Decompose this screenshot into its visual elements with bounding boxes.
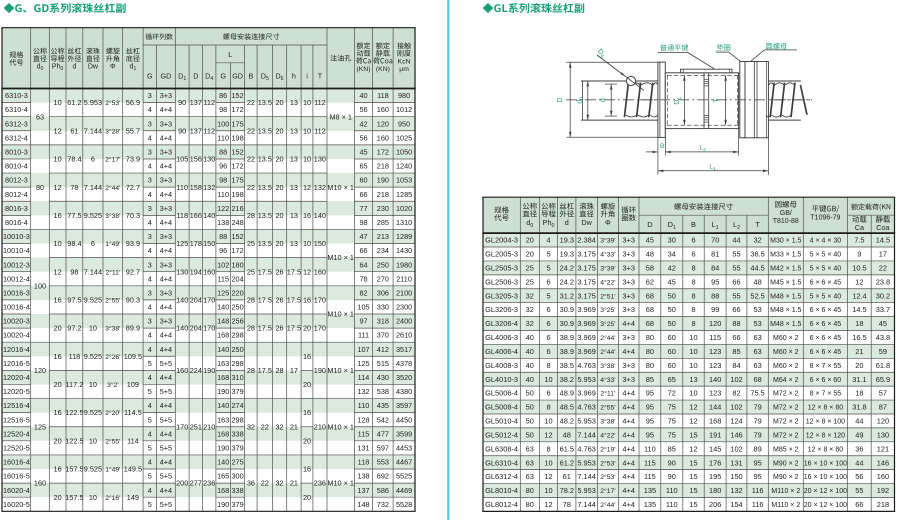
svg-text:30: 30 <box>668 236 676 245</box>
svg-text:Dw: Dw <box>581 218 592 227</box>
svg-text:148: 148 <box>217 317 229 326</box>
svg-text:105: 105 <box>357 303 369 312</box>
svg-text:12: 12 <box>855 277 863 286</box>
svg-text:79: 79 <box>753 431 761 440</box>
svg-text:2°17': 2°17' <box>105 156 120 164</box>
svg-text:4: 4 <box>148 486 152 495</box>
svg-text:95: 95 <box>646 417 654 426</box>
svg-text:3.969: 3.969 <box>577 389 596 398</box>
svg-text:T: T <box>713 98 720 103</box>
svg-text:63: 63 <box>526 444 534 453</box>
svg-text:112: 112 <box>314 126 326 135</box>
svg-text:GL6310-4: GL6310-4 <box>485 458 518 467</box>
svg-text:M48 × 1.5: M48 × 1.5 <box>770 321 801 328</box>
svg-text:3°39': 3°39' <box>600 237 615 245</box>
svg-text:28: 28 <box>247 324 255 333</box>
svg-text:T: T <box>755 220 760 229</box>
svg-text:10020-3: 10020-3 <box>3 317 30 326</box>
svg-text:3+3: 3+3 <box>160 176 172 185</box>
svg-text:50: 50 <box>526 417 534 426</box>
svg-text:4+4: 4+4 <box>160 345 172 354</box>
svg-text:60: 60 <box>668 361 676 370</box>
svg-text:9.525: 9.525 <box>84 352 102 361</box>
svg-text:5: 5 <box>546 250 550 259</box>
svg-text:15: 15 <box>689 472 697 481</box>
svg-text:80: 80 <box>646 333 654 342</box>
svg-text:48: 48 <box>563 431 571 440</box>
svg-text:16: 16 <box>54 211 62 220</box>
svg-text:110: 110 <box>358 401 370 410</box>
svg-text:135: 135 <box>644 500 656 509</box>
svg-text:236: 236 <box>203 479 215 488</box>
svg-text:GL2505-3: GL2505-3 <box>485 264 518 273</box>
svg-text:97: 97 <box>359 317 367 326</box>
svg-text:16: 16 <box>54 408 62 417</box>
svg-text:4+4: 4+4 <box>160 373 172 382</box>
svg-text:6: 6 <box>91 239 95 248</box>
svg-text:4+4: 4+4 <box>622 486 635 495</box>
svg-text:8: 8 <box>691 264 695 273</box>
svg-text:412: 412 <box>377 345 389 354</box>
svg-text:42: 42 <box>668 264 676 273</box>
svg-text:12: 12 <box>54 126 62 135</box>
svg-text:78.2: 78.2 <box>560 486 574 495</box>
svg-text:131: 131 <box>357 444 369 453</box>
svg-text:13: 13 <box>290 126 298 135</box>
svg-text:132: 132 <box>203 183 215 192</box>
svg-text:194: 194 <box>190 267 202 276</box>
svg-text:40: 40 <box>526 347 534 356</box>
svg-text:206: 206 <box>709 500 721 509</box>
svg-text:4+4: 4+4 <box>622 444 635 453</box>
svg-text:144: 144 <box>709 403 721 412</box>
svg-text:90: 90 <box>668 472 676 481</box>
svg-text:97.5: 97.5 <box>67 296 81 305</box>
svg-text:3+3: 3+3 <box>622 277 635 286</box>
svg-text:150: 150 <box>730 472 742 481</box>
svg-text:586: 586 <box>377 486 389 495</box>
svg-text:2°55': 2°55' <box>105 437 120 445</box>
svg-text:102: 102 <box>730 444 742 453</box>
svg-text:2°44': 2°44' <box>600 348 615 356</box>
svg-text:15: 15 <box>689 431 697 440</box>
svg-text:10.5: 10.5 <box>852 264 866 273</box>
svg-text:306: 306 <box>377 289 389 298</box>
svg-text:2°51': 2°51' <box>600 292 615 300</box>
svg-text:40: 40 <box>526 333 534 342</box>
svg-text:138: 138 <box>357 472 369 481</box>
svg-text:20: 20 <box>54 493 62 502</box>
svg-text:3599: 3599 <box>396 429 412 438</box>
svg-text:44: 44 <box>855 458 863 467</box>
svg-text:13.5: 13.5 <box>258 239 272 248</box>
svg-text:3+3: 3+3 <box>622 333 635 342</box>
svg-text:7.144: 7.144 <box>577 472 596 481</box>
svg-text:G: G <box>220 71 226 80</box>
svg-text:44: 44 <box>855 417 863 426</box>
svg-text:GL5006-4: GL5006-4 <box>485 389 518 398</box>
svg-text:9.525: 9.525 <box>84 211 102 220</box>
svg-text:13: 13 <box>290 155 298 164</box>
svg-text:12 × 8 × 80: 12 × 8 × 80 <box>808 446 844 453</box>
svg-text:GD: GD <box>161 71 172 80</box>
svg-text:3+3: 3+3 <box>160 91 172 100</box>
svg-text:8: 8 <box>691 291 695 300</box>
svg-text:63: 63 <box>526 472 534 481</box>
svg-text:22: 22 <box>879 264 887 273</box>
svg-text:5: 5 <box>148 359 152 368</box>
svg-text:5+5: 5+5 <box>160 359 172 368</box>
svg-text:M85 × 2: M85 × 2 <box>773 446 799 453</box>
svg-text:77.5: 77.5 <box>67 211 81 220</box>
svg-text:95: 95 <box>646 431 654 440</box>
svg-text:123: 123 <box>709 347 721 356</box>
svg-text:285: 285 <box>377 218 389 227</box>
svg-text:172: 172 <box>232 105 244 114</box>
svg-text:118: 118 <box>358 458 370 467</box>
svg-text:175: 175 <box>232 119 244 128</box>
svg-text:3°38': 3°38' <box>105 212 120 220</box>
svg-text:8: 8 <box>691 319 695 328</box>
svg-text:47: 47 <box>359 232 367 241</box>
svg-text:10: 10 <box>544 417 552 426</box>
svg-text:85: 85 <box>668 444 676 453</box>
svg-text:42: 42 <box>359 119 367 128</box>
svg-text:12516-5: 12516-5 <box>3 415 30 424</box>
svg-text:120: 120 <box>877 417 889 426</box>
svg-text:170: 170 <box>203 296 215 305</box>
svg-text:6310-3: 6310-3 <box>5 91 28 100</box>
svg-text:2°44': 2°44' <box>105 184 120 192</box>
svg-text:56: 56 <box>359 133 367 142</box>
svg-text:12: 12 <box>303 183 311 192</box>
svg-text:44.5: 44.5 <box>750 264 764 273</box>
svg-text:6: 6 <box>546 389 550 398</box>
svg-text:13.5: 13.5 <box>258 98 272 107</box>
svg-text:170: 170 <box>314 296 326 305</box>
svg-text:16: 16 <box>303 465 311 474</box>
svg-text:55: 55 <box>732 264 740 273</box>
svg-text:2°44': 2°44' <box>600 501 615 509</box>
svg-text:111: 111 <box>358 331 369 340</box>
svg-text:204: 204 <box>232 274 244 283</box>
svg-text:3+3: 3+3 <box>622 250 635 259</box>
svg-text:1025: 1025 <box>396 133 412 142</box>
svg-text:131: 131 <box>730 458 742 467</box>
svg-text:61.8: 61.8 <box>876 361 890 370</box>
svg-text:GL2005-3: GL2005-3 <box>485 250 518 259</box>
svg-text:3: 3 <box>148 289 152 298</box>
svg-text:5+5: 5+5 <box>160 444 172 453</box>
svg-text:68: 68 <box>646 291 654 300</box>
svg-text:9.525: 9.525 <box>84 296 102 305</box>
svg-text:88: 88 <box>732 319 740 328</box>
svg-text:1020: 1020 <box>396 204 412 213</box>
svg-text:172: 172 <box>377 148 389 157</box>
svg-text:60: 60 <box>359 176 367 185</box>
svg-text:298: 298 <box>232 415 244 424</box>
svg-text:152: 152 <box>232 148 244 157</box>
svg-text:168: 168 <box>217 429 229 438</box>
svg-text:10: 10 <box>89 380 97 389</box>
svg-text:90.3: 90.3 <box>126 296 140 305</box>
svg-text:3°25': 3°25' <box>600 320 615 328</box>
svg-text:50: 50 <box>526 431 534 440</box>
svg-text:88: 88 <box>711 291 719 300</box>
svg-text:13.5: 13.5 <box>258 183 272 192</box>
svg-text:6: 6 <box>91 155 95 164</box>
svg-text:10: 10 <box>689 361 697 370</box>
svg-text:10: 10 <box>544 458 552 467</box>
svg-text:90: 90 <box>668 458 676 467</box>
svg-text:2400: 2400 <box>396 317 412 326</box>
svg-text:112: 112 <box>314 98 326 107</box>
svg-text:128: 128 <box>357 415 369 424</box>
svg-text:77: 77 <box>359 204 367 213</box>
svg-text:230: 230 <box>377 204 389 213</box>
svg-text:78: 78 <box>70 183 78 192</box>
svg-text:150: 150 <box>203 239 215 248</box>
svg-text:45: 45 <box>668 277 676 286</box>
svg-text:68: 68 <box>646 305 654 314</box>
svg-text:32: 32 <box>247 422 255 431</box>
svg-text:66: 66 <box>359 190 367 199</box>
svg-text:10: 10 <box>544 375 552 384</box>
svg-text:95: 95 <box>711 277 719 286</box>
svg-text:338: 338 <box>232 429 244 438</box>
svg-text:53: 53 <box>753 305 761 314</box>
svg-text:5+5: 5+5 <box>160 472 172 481</box>
svg-text:16: 16 <box>303 211 311 220</box>
svg-text:17.5: 17.5 <box>287 296 301 305</box>
svg-text:13: 13 <box>290 211 298 220</box>
svg-text:10: 10 <box>54 98 62 107</box>
svg-text:22: 22 <box>247 183 255 192</box>
svg-text:(KN): (KN) <box>376 66 390 73</box>
svg-text:15: 15 <box>689 500 697 509</box>
svg-text:8: 8 <box>546 403 550 412</box>
svg-text:12 × 8 × 120: 12 × 8 × 120 <box>806 433 845 440</box>
svg-text:32: 32 <box>275 479 283 488</box>
svg-text:13: 13 <box>290 98 298 107</box>
svg-text:5 × 5 × 40: 5 × 5 × 40 <box>810 293 842 300</box>
svg-text:3+3: 3+3 <box>160 289 172 298</box>
svg-text:4: 4 <box>148 162 152 171</box>
svg-text:12: 12 <box>544 472 552 481</box>
svg-text:12516-4: 12516-4 <box>3 401 30 410</box>
svg-text:M10 × 1: M10 × 1 <box>327 422 354 431</box>
svg-text:109.5: 109.5 <box>124 352 142 361</box>
svg-text:6: 6 <box>546 347 550 356</box>
svg-text:5: 5 <box>148 472 152 481</box>
svg-text:190: 190 <box>217 500 229 509</box>
svg-text:93.9: 93.9 <box>126 239 140 248</box>
svg-text:55: 55 <box>855 486 863 495</box>
svg-text:53: 53 <box>753 319 761 328</box>
svg-text:65.9: 65.9 <box>876 375 890 384</box>
svg-text:7.144: 7.144 <box>84 126 102 135</box>
svg-text:20: 20 <box>855 361 863 370</box>
svg-text:M110 × 2: M110 × 2 <box>771 502 800 509</box>
svg-text:218: 218 <box>877 500 889 509</box>
svg-text:6 × 6 × 45: 6 × 6 × 45 <box>810 307 842 314</box>
svg-text:63: 63 <box>526 458 534 467</box>
svg-text:130: 130 <box>877 431 889 440</box>
svg-text:82: 82 <box>732 389 740 398</box>
svg-text:78.4: 78.4 <box>67 155 81 164</box>
svg-text:4.763: 4.763 <box>577 403 596 412</box>
svg-text:GL3206-4: GL3206-4 <box>485 319 518 328</box>
svg-text:191: 191 <box>709 431 721 440</box>
svg-text:10: 10 <box>303 126 311 135</box>
svg-text:115: 115 <box>217 274 229 283</box>
svg-text:13.5: 13.5 <box>258 155 272 164</box>
svg-text:190: 190 <box>217 387 229 396</box>
svg-text:80: 80 <box>646 361 654 370</box>
svg-text:M42 × 1.5: M42 × 1.5 <box>770 266 801 273</box>
svg-text:13.5: 13.5 <box>258 211 272 220</box>
svg-text:32: 32 <box>526 319 534 328</box>
svg-text:33.7: 33.7 <box>876 305 890 314</box>
svg-text:370: 370 <box>377 331 389 340</box>
svg-text:110: 110 <box>176 183 188 192</box>
svg-text:154: 154 <box>730 500 742 509</box>
svg-text:112: 112 <box>203 126 215 135</box>
svg-text:175: 175 <box>232 176 244 185</box>
svg-text:3°25': 3°25' <box>600 306 615 314</box>
svg-text:66: 66 <box>359 246 367 255</box>
svg-text:5+5: 5+5 <box>160 500 172 509</box>
svg-text:9.525: 9.525 <box>84 465 102 474</box>
svg-text:4450: 4450 <box>396 415 412 424</box>
svg-text:50: 50 <box>526 389 534 398</box>
svg-text:140: 140 <box>217 458 229 467</box>
svg-text:12520-4: 12520-4 <box>3 429 30 438</box>
svg-text:2°53': 2°53' <box>600 459 615 467</box>
svg-text:4+4: 4+4 <box>160 429 172 438</box>
svg-text:40: 40 <box>359 91 367 100</box>
svg-text:180: 180 <box>709 486 721 495</box>
svg-text:4+4: 4+4 <box>160 218 172 227</box>
svg-text:48.5: 48.5 <box>560 403 574 412</box>
svg-text:3: 3 <box>148 317 152 326</box>
svg-text:330: 330 <box>377 303 389 312</box>
svg-text:4: 4 <box>148 373 152 382</box>
svg-text:160: 160 <box>203 267 215 276</box>
svg-text:18: 18 <box>855 319 863 328</box>
svg-text:5: 5 <box>148 500 152 509</box>
svg-text:4: 4 <box>148 429 152 438</box>
svg-text:85: 85 <box>732 347 740 356</box>
svg-text:1310: 1310 <box>396 218 412 227</box>
svg-text:21: 21 <box>290 422 298 431</box>
svg-text:3+3: 3+3 <box>622 361 635 370</box>
svg-text:6: 6 <box>546 333 550 342</box>
svg-text:190: 190 <box>377 176 389 185</box>
svg-text:5.953: 5.953 <box>84 98 102 107</box>
svg-text:4 × 4 × 30: 4 × 4 × 30 <box>810 238 842 245</box>
svg-text:M10 × 1: M10 × 1 <box>327 253 354 262</box>
svg-text:102: 102 <box>730 375 742 384</box>
svg-text:89.9: 89.9 <box>126 324 140 333</box>
svg-text:170: 170 <box>203 324 215 333</box>
svg-text:277: 277 <box>190 479 202 488</box>
svg-text:56: 56 <box>855 472 863 481</box>
svg-text:216: 216 <box>232 204 244 213</box>
svg-text:135: 135 <box>644 486 656 495</box>
svg-text:4+4: 4+4 <box>622 431 635 440</box>
svg-text:4+4: 4+4 <box>160 246 172 255</box>
svg-text:GL3205-3: GL3205-3 <box>485 291 518 300</box>
svg-text:1053: 1053 <box>396 176 412 185</box>
svg-text:166: 166 <box>190 211 202 220</box>
svg-text:4+4: 4+4 <box>160 190 172 199</box>
svg-text:12.4: 12.4 <box>852 291 866 300</box>
svg-text:2°19': 2°19' <box>600 445 615 453</box>
svg-text:31.1: 31.1 <box>852 375 866 384</box>
svg-text:20: 20 <box>275 126 283 135</box>
svg-text:98: 98 <box>359 218 367 227</box>
svg-text:10: 10 <box>303 155 311 164</box>
svg-text:48.2: 48.2 <box>560 417 574 426</box>
svg-text:50: 50 <box>526 403 534 412</box>
svg-text:26: 26 <box>275 324 283 333</box>
svg-text:100: 100 <box>217 119 229 128</box>
svg-text:36: 36 <box>855 444 863 453</box>
svg-text:M64 × 2: M64 × 2 <box>773 377 799 384</box>
svg-text:2610: 2610 <box>396 331 412 340</box>
svg-text:168: 168 <box>217 373 229 382</box>
svg-text:66: 66 <box>732 333 740 342</box>
svg-text:250: 250 <box>232 303 244 312</box>
svg-text:248: 248 <box>232 218 244 227</box>
svg-text:3°28': 3°28' <box>105 127 120 135</box>
svg-text:178: 178 <box>190 239 202 248</box>
svg-text:192: 192 <box>877 486 889 495</box>
svg-text:40: 40 <box>526 361 534 370</box>
svg-text:20: 20 <box>303 380 311 389</box>
svg-text:78: 78 <box>563 500 571 509</box>
svg-text:3: 3 <box>148 176 152 185</box>
svg-text:120: 120 <box>377 119 389 128</box>
svg-text:62: 62 <box>646 277 654 286</box>
svg-text:140: 140 <box>176 296 188 305</box>
svg-text:M10 × 1: M10 × 1 <box>327 479 354 488</box>
svg-text:163: 163 <box>217 415 229 424</box>
svg-text:16: 16 <box>303 352 311 361</box>
svg-text:190: 190 <box>203 366 215 375</box>
svg-text:20 × 12 × 100: 20 × 12 × 100 <box>804 502 847 509</box>
svg-text:256: 256 <box>232 317 244 326</box>
svg-text:110: 110 <box>666 486 678 495</box>
svg-text:10: 10 <box>89 324 97 333</box>
svg-text:4°22': 4°22' <box>600 278 615 286</box>
svg-text:17: 17 <box>879 250 887 259</box>
svg-text:22: 22 <box>247 126 255 135</box>
svg-text:28: 28 <box>247 366 255 375</box>
svg-text:M45 × 1.5: M45 × 1.5 <box>770 279 801 286</box>
svg-text:4+4: 4+4 <box>622 417 635 426</box>
svg-text:Coa: Coa <box>876 223 889 232</box>
svg-text:65: 65 <box>359 162 367 171</box>
svg-text:30.9: 30.9 <box>560 319 574 328</box>
svg-text:5: 5 <box>546 264 550 273</box>
svg-text:140: 140 <box>203 211 215 220</box>
svg-text:15: 15 <box>689 486 697 495</box>
svg-text:16.5: 16.5 <box>852 333 866 342</box>
svg-text:10: 10 <box>54 155 62 164</box>
svg-text:3°38': 3°38' <box>600 418 615 426</box>
